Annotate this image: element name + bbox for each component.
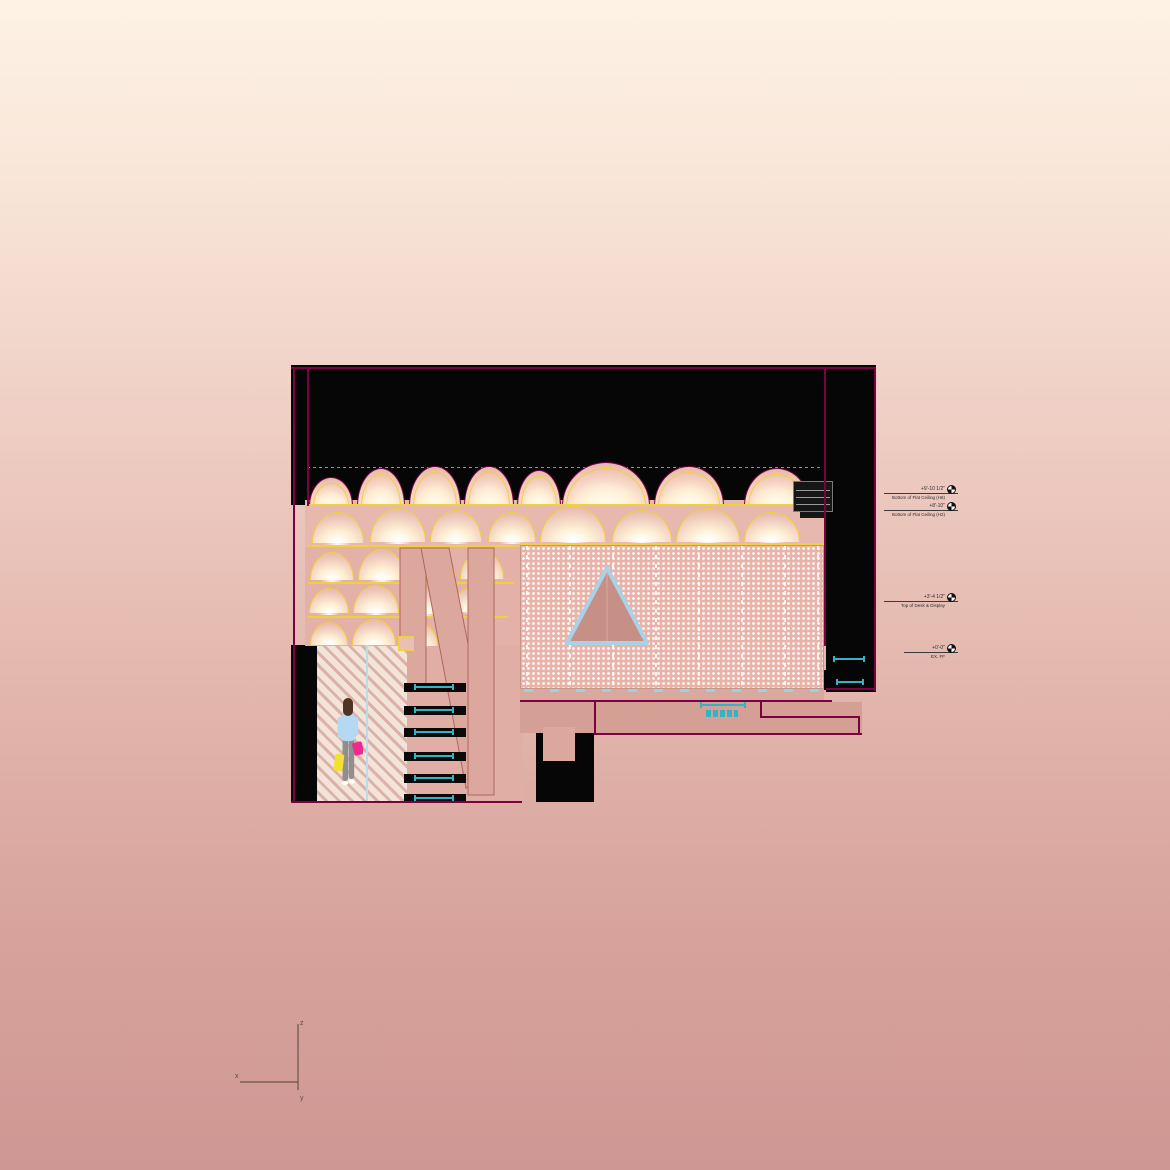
section-drawing — [0, 0, 1170, 1170]
axis-x-label: x — [235, 1073, 239, 1080]
annotation-leader-line — [884, 510, 958, 511]
dimension-arrow — [414, 755, 454, 757]
elevation-annotation: +9'-10 1/2"Bottom of Flat Ceiling (H8) — [884, 486, 958, 500]
section-outline — [760, 716, 860, 718]
elevation-annotation: +3'-4 1/2"Top of Desk & Display — [884, 594, 958, 608]
section-outline — [520, 700, 832, 702]
section-outline — [291, 801, 522, 803]
screen-panel-joint — [817, 546, 819, 688]
section-outline — [858, 716, 860, 734]
section-outline — [874, 367, 876, 691]
drawer-slot — [404, 683, 466, 692]
axis-z-label: z — [300, 1020, 304, 1027]
dimension-text-mark — [706, 710, 738, 717]
drawer-slot — [404, 728, 466, 737]
elevation-annotation: +0'-0"EX. FF — [904, 645, 958, 659]
annotation-leader-line — [904, 652, 958, 653]
elevation-annotation: +8'-10"Bottom of Flat Ceiling (H2) — [884, 503, 958, 517]
elevation-label: EX. FF — [904, 654, 958, 659]
axis-y-label: y — [300, 1095, 304, 1102]
person-with-shopping-bags — [333, 695, 363, 795]
screen-panel-joint — [784, 546, 786, 688]
dimension-arrow — [414, 731, 454, 733]
dimension-arrow — [836, 681, 864, 683]
dimension-arrow — [414, 709, 454, 711]
display-box — [398, 636, 414, 651]
section-outline — [291, 367, 876, 369]
dimension-arrow — [700, 704, 746, 706]
section-outline — [824, 367, 826, 646]
datum-target-icon — [947, 502, 956, 511]
elevation-label: Bottom of Flat Ceiling (H2) — [884, 512, 958, 517]
screen-base-ticks — [524, 689, 824, 692]
datum-target-icon — [947, 485, 956, 494]
dimension-arrow — [414, 777, 454, 779]
triangle-window — [560, 560, 655, 650]
section-outline — [293, 367, 295, 803]
dimension-arrow — [414, 797, 454, 799]
axis-indicator: z x y — [234, 1014, 310, 1104]
screen-panel-joint — [741, 546, 743, 688]
screen-panel-joint — [655, 546, 657, 688]
glass-divider-line — [366, 645, 368, 802]
datum-target-icon — [947, 593, 956, 602]
mechanical-unit — [793, 481, 833, 512]
mechanical-unit-base — [800, 512, 826, 518]
section-outline — [826, 688, 876, 690]
elevation-label: Bottom of Flat Ceiling (H8) — [884, 495, 958, 500]
annotation-leader-line — [884, 601, 958, 602]
section-outline — [594, 733, 862, 735]
section-outline — [594, 701, 596, 734]
elevation-label: Top of Desk & Display — [884, 603, 958, 608]
section-rendering-canvas: +9'-10 1/2"Bottom of Flat Ceiling (H8)+8… — [0, 0, 1170, 1170]
screen-panel-joint — [698, 546, 700, 688]
screen-panel-joint — [526, 546, 528, 688]
dimension-arrow — [833, 658, 865, 660]
section-outline — [307, 367, 309, 506]
section-outline — [760, 702, 762, 717]
drawer-slot — [404, 706, 466, 715]
drawer-slot — [404, 752, 466, 761]
datum-target-icon — [947, 644, 956, 653]
dimension-arrow — [414, 686, 454, 688]
drawer-slot — [404, 774, 466, 783]
annotation-leader-line — [884, 493, 958, 494]
